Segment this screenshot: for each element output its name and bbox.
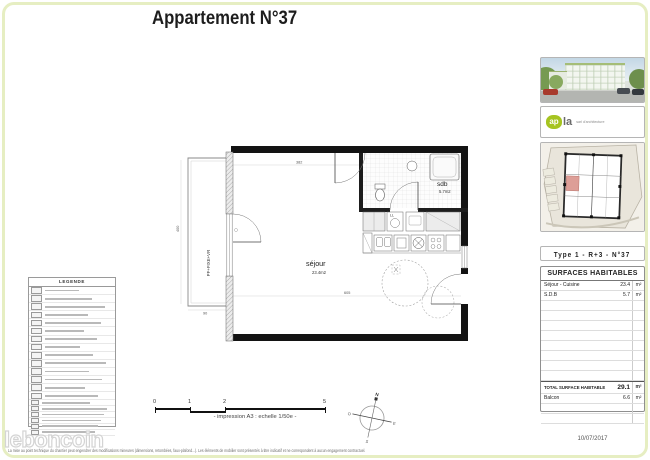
- surface-row: [541, 341, 644, 351]
- surface-row: [541, 321, 644, 331]
- scale-tick-5: 5: [323, 399, 326, 405]
- scale-tick-2: 2: [223, 399, 226, 405]
- toilet-tank: [375, 184, 385, 189]
- dim-left: 400: [176, 226, 180, 232]
- legend-row: [29, 384, 115, 392]
- dark-car: [617, 88, 630, 94]
- furniture-dashed: [382, 260, 454, 318]
- type-header: Type 1 - R+3 - N°37: [540, 246, 645, 261]
- legend-row: [29, 336, 115, 344]
- toilet-icon: [376, 189, 385, 201]
- surface-row: [541, 371, 644, 381]
- dim-bottom: 605: [344, 291, 350, 295]
- surface-row: Séjour - Cuisine23.4m²: [541, 281, 644, 291]
- legend-row: [29, 392, 115, 400]
- highlighted-unit: [566, 176, 579, 191]
- window-label: PF+FIXE+VR: [206, 250, 211, 277]
- legend-row: [29, 287, 115, 295]
- disclaimer-text: La mise au point technique du chantier p…: [8, 448, 365, 453]
- legend-row: [29, 344, 115, 352]
- floor-plan: 400 90 382 223 605 PF+FIXE+VR: [168, 136, 478, 346]
- logo-subtext: sarl d'architecture: [576, 120, 604, 124]
- scale-bar: 0 1 2 5 - impression A3 : echelle 1/50e …: [155, 399, 335, 423]
- plan-document-page: Appartement N°37 LEGENDE: [0, 0, 650, 460]
- surface-row: [541, 414, 644, 424]
- surfaces-title: SURFACES HABITABLES: [541, 267, 644, 281]
- kitchen-row: [363, 233, 461, 253]
- surfaces-table: SURFACES HABITABLES Séjour - Cuisine23.4…: [540, 266, 645, 412]
- washbasin-icon: [407, 161, 417, 171]
- room-label-sdb: sdb: [437, 181, 448, 188]
- dim-top: 382: [296, 161, 302, 165]
- dark-car: [632, 89, 644, 95]
- balcony: [188, 158, 226, 306]
- compass-s: S: [365, 439, 369, 444]
- entrance-door-arc: [431, 274, 461, 304]
- window-right: [462, 246, 467, 268]
- page-title: Appartement N°37: [152, 8, 297, 30]
- legend-row: [29, 303, 115, 311]
- room-area-sdb: 5.7m2: [439, 189, 451, 194]
- plan-date: 10/07/2017: [540, 436, 645, 442]
- surface-row: [541, 351, 644, 361]
- legend-title: LEGENDE: [29, 278, 115, 287]
- legend-row: [29, 295, 115, 303]
- building-photo: [540, 57, 645, 103]
- room-label-sejour: séjour: [306, 259, 326, 268]
- compass-e: E: [393, 421, 397, 427]
- surface-row: [541, 311, 644, 321]
- washer-label: LL: [390, 214, 394, 218]
- storage-row: [363, 212, 460, 231]
- red-car: [543, 89, 558, 95]
- scale-tick-0: 0: [153, 399, 156, 405]
- building-render: [565, 63, 625, 90]
- surface-row: [541, 361, 644, 371]
- room-area-sejour: 23.4m2: [312, 270, 327, 275]
- architect-logo: ap la sarl d'architecture: [540, 106, 645, 138]
- surface-row: [541, 331, 644, 341]
- scale-tick-1: 1: [188, 399, 191, 405]
- compass-rose: N E S O: [347, 392, 397, 444]
- left-wall: [226, 152, 238, 341]
- dim-balcony: 90: [203, 312, 207, 316]
- legend-box: LEGENDE: [28, 277, 116, 427]
- chair-mark: [394, 267, 398, 272]
- surface-total-row: TOTAL SURFACE HABITABLE29.1m²: [541, 381, 644, 394]
- logo-blob: ap: [546, 115, 562, 129]
- surface-row: Balcon6.6m²: [541, 394, 644, 404]
- legend-row: [29, 352, 115, 360]
- legend-row: [29, 368, 115, 376]
- compass-o: O: [347, 411, 351, 417]
- legend-rows: [29, 287, 115, 436]
- tree-blob: [629, 69, 645, 89]
- surface-row: [541, 404, 644, 414]
- scale-caption: - impression A3 : echelle 1/50e -: [155, 414, 355, 420]
- compass-n: N: [375, 392, 379, 397]
- legend-row: [29, 319, 115, 327]
- balcony-door-arc: [233, 214, 261, 242]
- surface-row: [541, 301, 644, 311]
- legend-row: [29, 360, 115, 368]
- legend-row: [29, 327, 115, 335]
- site-plan-thumbnail: [540, 142, 645, 232]
- surface-row: S.D.B5.7m²: [541, 291, 644, 301]
- legend-row: [29, 311, 115, 319]
- legend-row: [29, 376, 115, 384]
